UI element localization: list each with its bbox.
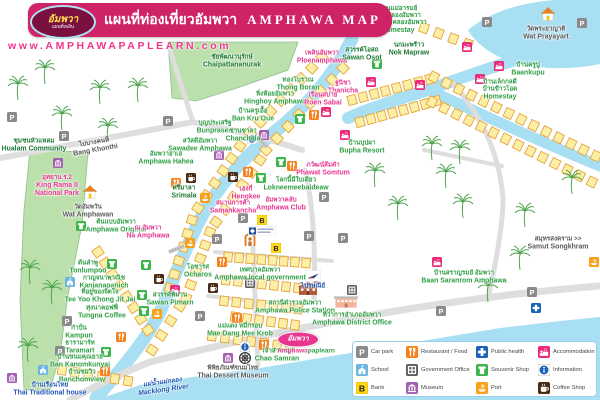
legend-item-museum: Museum <box>406 382 476 394</box>
legend-item-label: Port <box>491 385 502 391</box>
legend-item-souvenir-shop: Souvenir Shop <box>476 364 538 376</box>
sc-legend-icon <box>356 364 368 376</box>
amphawa-tourist-map: PPPPPPPPPPPPPPPzzzzzzzzzzzzzzzzzzBB บ้าน… <box>0 0 600 400</box>
legend-item-label: Museum <box>421 385 443 391</box>
gv-legend-icon <box>406 364 418 376</box>
legend-item-bank: BBank <box>356 382 406 394</box>
legend-item-label: Coffee Shop <box>553 385 585 391</box>
pk-legend-icon: P <box>356 346 368 358</box>
legend-item-label: Souvenir Shop <box>491 367 529 373</box>
sv-legend-icon <box>476 364 488 376</box>
svg-text:P: P <box>359 347 365 357</box>
legend-item-port: Port <box>476 382 538 394</box>
legend-item-label: Restaurant / Food <box>421 349 467 355</box>
svg-text:zz: zz <box>544 347 548 351</box>
title-banner: อัมพวา แผนที่เพลิน แผนที่ท่องเที่ยวอัมพว… <box>28 3 392 37</box>
mu-legend-icon <box>406 382 418 394</box>
logo-sub-text: แผนที่เพลิน <box>52 25 74 30</box>
pt-legend-icon <box>476 382 488 394</box>
legend-item-label: Car park <box>371 349 393 355</box>
map-title-thai: แผนที่ท่องเที่ยวอัมพวา <box>104 9 237 31</box>
bk-legend-icon: B <box>356 382 368 394</box>
rs-legend-icon <box>406 346 418 358</box>
amphawa-brand-logo: อัมพวา แผนที่เพลิน <box>30 5 96 39</box>
legend-item-government-office: Government Office <box>406 364 476 376</box>
legend-item-public-health: Public health <box>476 346 538 358</box>
legend-item-label: Accommodation <box>553 349 595 355</box>
legend-item-information: Information <box>538 364 599 376</box>
svg-text:B: B <box>359 383 365 393</box>
map-title-english: AMPHAWA MAP <box>247 12 381 28</box>
legend-item-school: School <box>356 364 406 376</box>
map-legend: PCar parkRestaurant / FoodPublic healthz… <box>352 341 597 397</box>
legend-item-restaurant-food: Restaurant / Food <box>406 346 476 358</box>
ac-legend-icon: zz <box>538 346 550 358</box>
legend-item-car-park: PCar park <box>356 346 406 358</box>
legend-item-label: Bank <box>371 385 384 391</box>
website-url: www.AMPHAWAPAPLEARN.com <box>8 40 231 52</box>
map-base-graphics <box>0 0 600 400</box>
legend-item-label: Government Office <box>421 367 470 373</box>
legend-item-coffee-shop: Coffee Shop <box>538 382 599 394</box>
in-legend-icon <box>538 364 550 376</box>
legend-item-label: School <box>371 367 389 373</box>
legend-item-label: Public health <box>491 349 524 355</box>
legend-item-accommodation: zzAccommodation <box>538 346 599 358</box>
cf-legend-icon <box>538 382 550 394</box>
legend-item-label: Information <box>553 367 582 373</box>
ph-legend-icon <box>476 346 488 358</box>
